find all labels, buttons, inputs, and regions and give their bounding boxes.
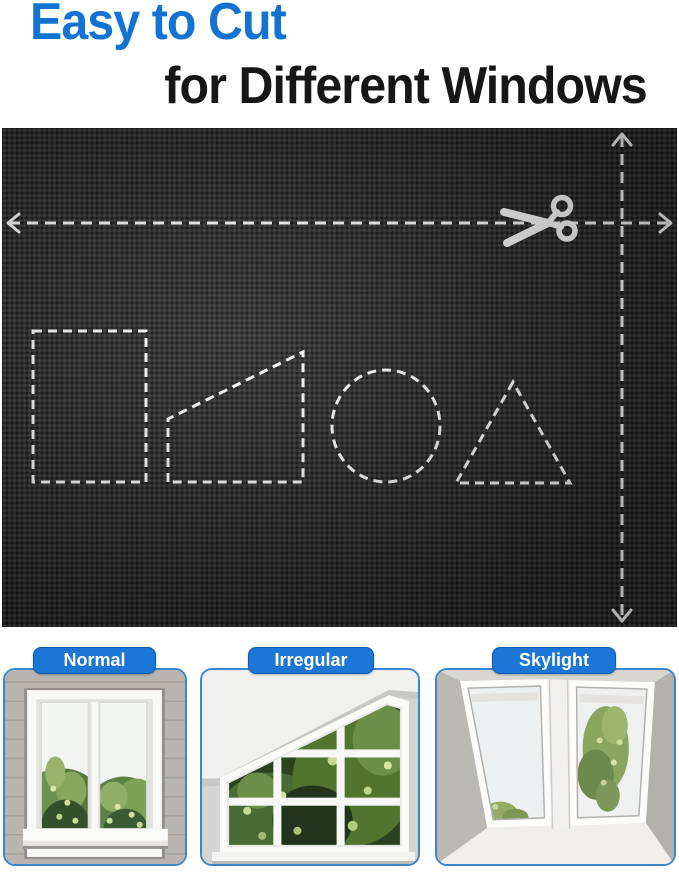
window-card-irregular [200, 668, 420, 866]
normal-window-photo [5, 670, 185, 864]
vertical-cut-line [613, 134, 631, 621]
rectangle-cut-shape [33, 331, 146, 482]
circle-cut-shape [332, 370, 440, 482]
trapezoid-cut-shape [168, 352, 303, 482]
window-type-badge-normal: Normal [33, 647, 156, 674]
window-type-badge-irregular: Irregular [248, 647, 374, 674]
headline-line1: Easy to Cut [30, 0, 286, 48]
product-infographic: Easy to Cut for Different Windows [0, 0, 679, 874]
shade-fabric-panel [2, 128, 677, 627]
headline-line2: for Different Windows [165, 60, 647, 112]
window-card-normal [3, 668, 187, 866]
window-card-skylight [435, 668, 676, 866]
triangle-cut-shape [456, 382, 570, 483]
scissors-icon [504, 198, 575, 244]
cut-guides-overlay [2, 128, 677, 627]
irregular-window-photo [202, 670, 418, 864]
window-type-badge-skylight: Skylight [492, 647, 616, 674]
skylight-window-photo [437, 670, 674, 864]
